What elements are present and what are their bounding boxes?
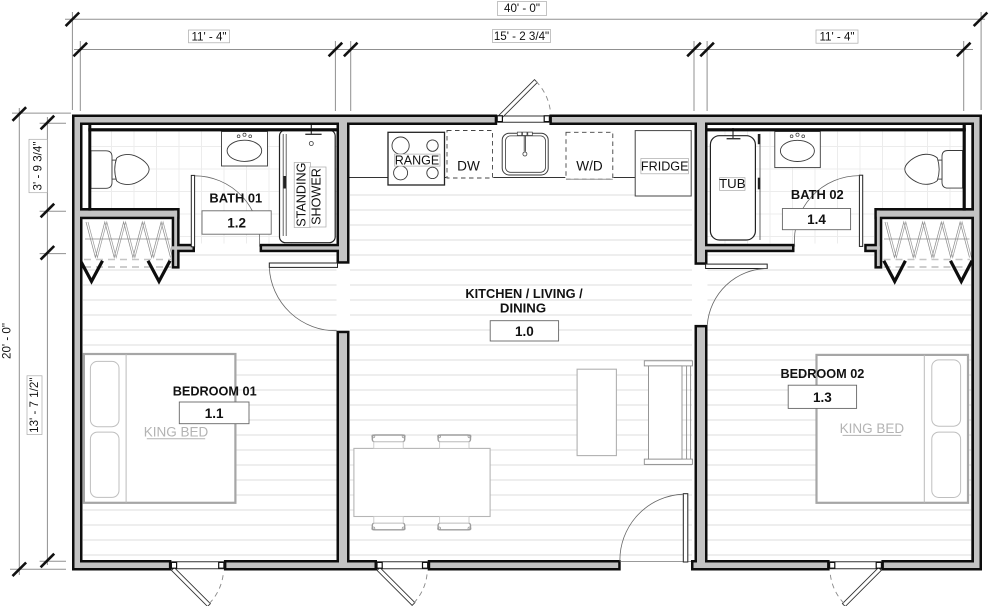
svg-text:1.1: 1.1: [205, 406, 224, 421]
svg-text:KITCHEN / LIVING /: KITCHEN / LIVING /: [465, 286, 583, 301]
svg-text:3' - 9 3/4": 3' - 9 3/4": [32, 142, 45, 191]
svg-text:1.2: 1.2: [227, 215, 246, 230]
svg-text:40' - 0": 40' - 0": [504, 2, 540, 15]
svg-text:13' - 7 1/2": 13' - 7 1/2": [28, 378, 41, 433]
svg-text:20' - 0": 20' - 0": [1, 323, 14, 359]
svg-text:W/D: W/D: [576, 158, 603, 173]
svg-text:11' - 4": 11' - 4": [819, 31, 854, 44]
svg-text:FRIDGE: FRIDGE: [641, 160, 689, 174]
svg-text:15' - 2 3/4": 15' - 2 3/4": [494, 30, 549, 43]
svg-text:TUB: TUB: [719, 176, 746, 191]
svg-text:DINING: DINING: [500, 300, 546, 315]
svg-text:1.4: 1.4: [807, 212, 826, 227]
svg-text:11' - 4": 11' - 4": [191, 30, 226, 43]
svg-text:1.0: 1.0: [515, 324, 534, 339]
svg-text:DW: DW: [457, 158, 480, 173]
svg-text:RANGE: RANGE: [395, 153, 439, 167]
svg-text:KING BED: KING BED: [144, 425, 209, 440]
svg-text:BEDROOM 02: BEDROOM 02: [780, 367, 864, 381]
svg-text:STANDING: STANDING: [295, 163, 309, 227]
svg-text:SHOWER: SHOWER: [309, 168, 323, 225]
svg-text:KING BED: KING BED: [840, 421, 905, 436]
svg-text:BATH 01: BATH 01: [209, 190, 262, 205]
svg-text:1.3: 1.3: [813, 390, 832, 405]
svg-text:BEDROOM 01: BEDROOM 01: [173, 384, 257, 398]
svg-text:BATH 02: BATH 02: [791, 187, 844, 202]
